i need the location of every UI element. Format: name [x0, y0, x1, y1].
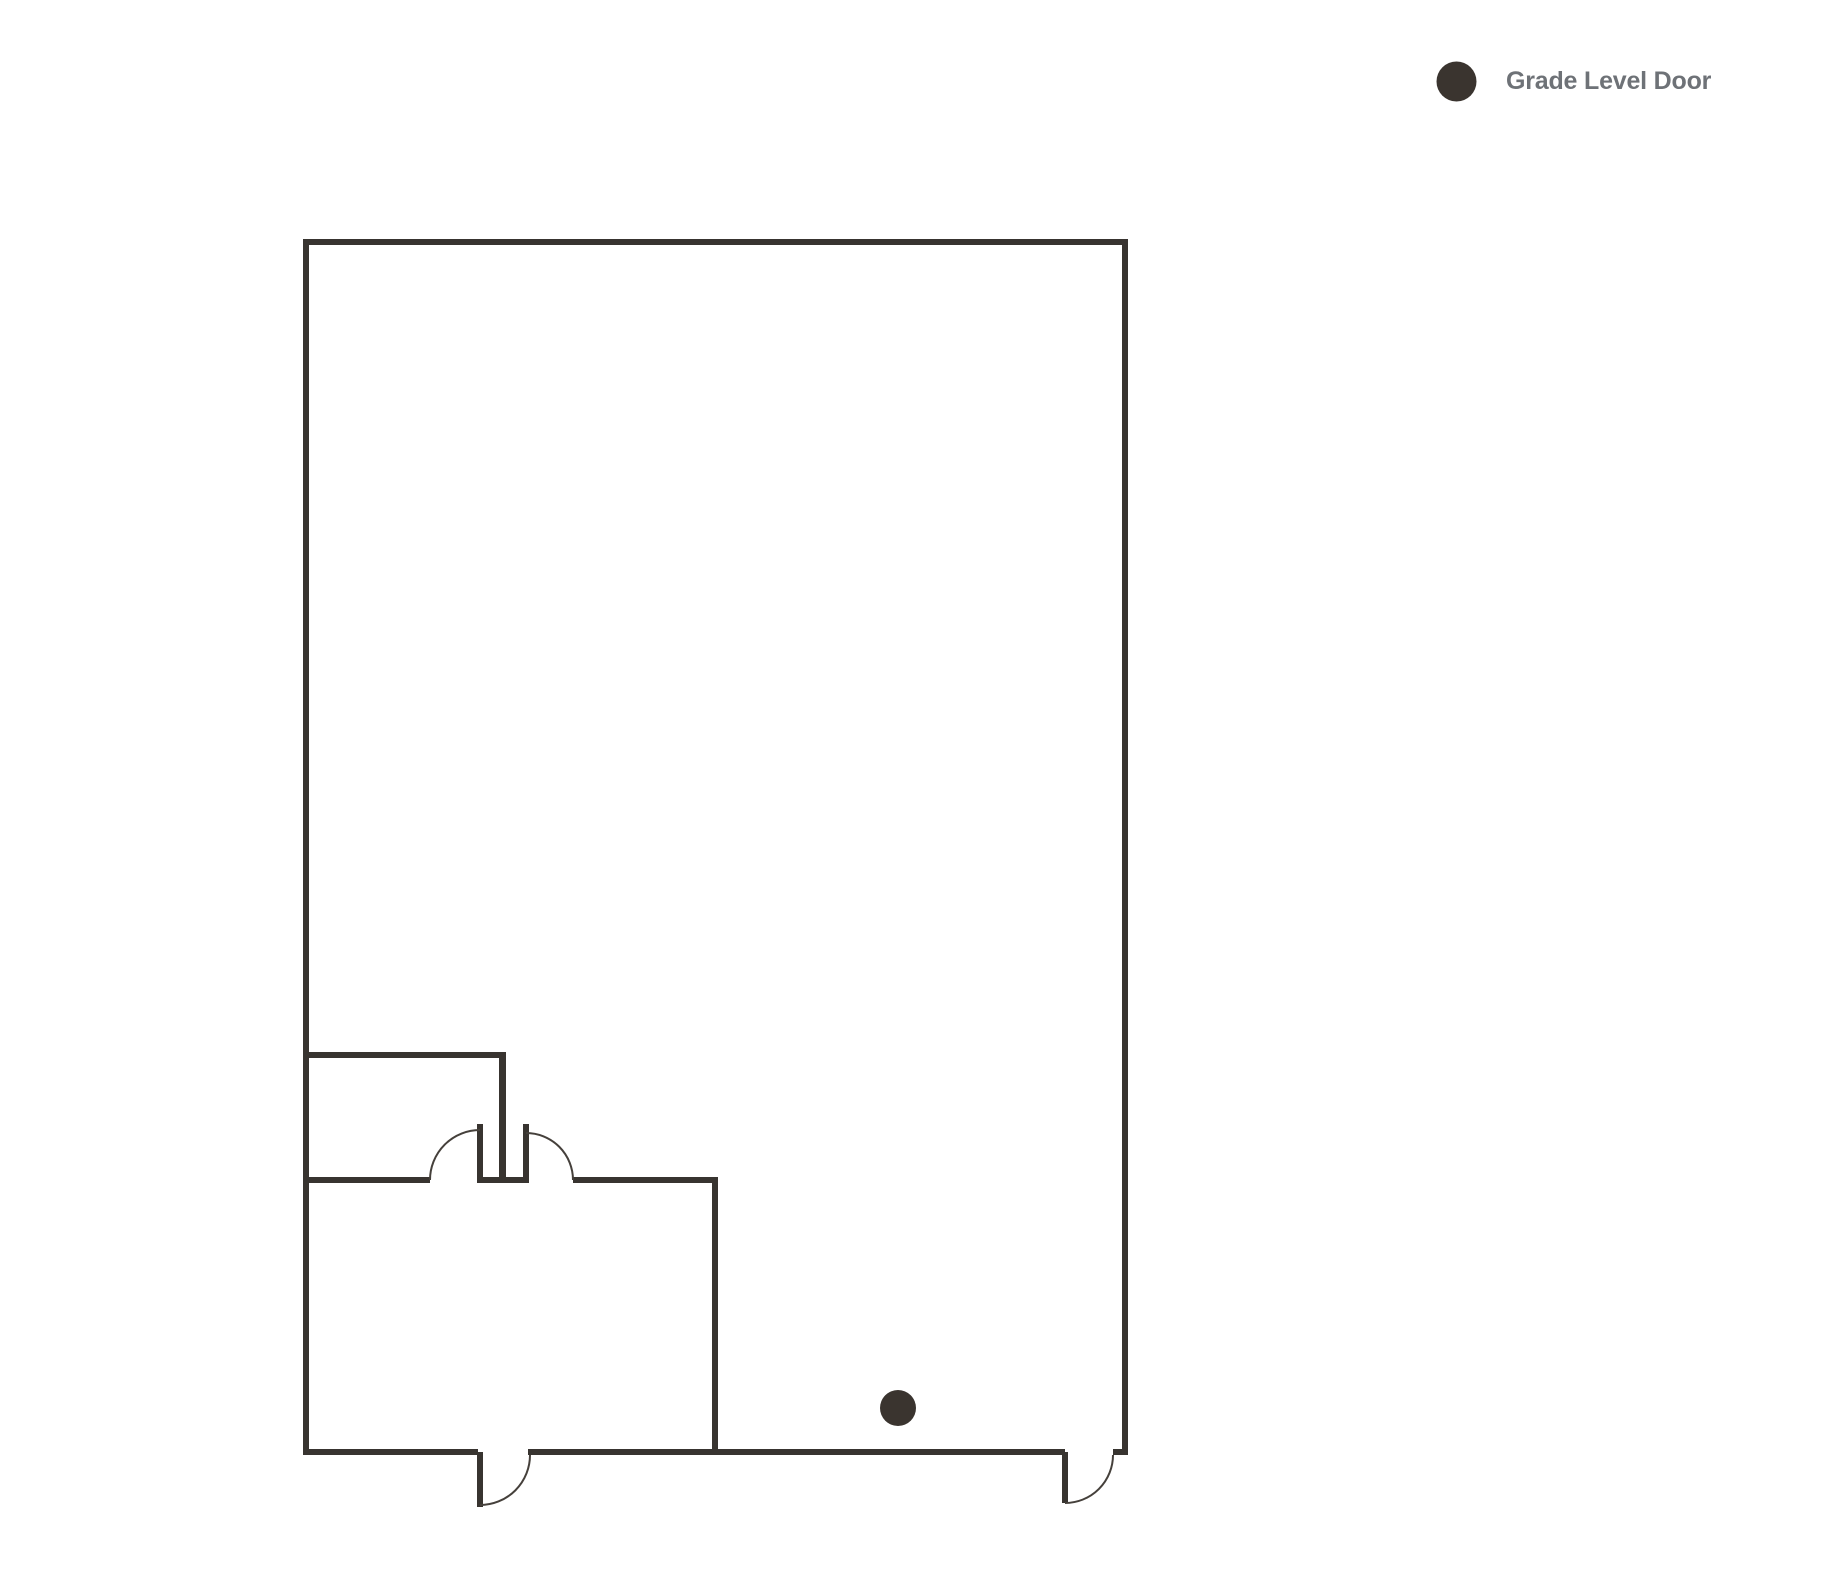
grade-level-door-marker	[880, 1390, 916, 1426]
wall-right	[1122, 239, 1128, 1455]
grade-level-door-icon	[1436, 61, 1477, 102]
door-leaf-exterior-left	[477, 1452, 483, 1507]
legend-marker-circle	[1437, 62, 1477, 102]
door-arc-interior-right	[526, 1133, 573, 1180]
wall-top	[303, 239, 1128, 245]
door-arc-exterior-left	[480, 1455, 530, 1505]
door-leaf-interior-left	[477, 1124, 483, 1183]
wall-room2-top-segment-3	[573, 1177, 718, 1183]
door-leaf-exterior-right	[1062, 1452, 1068, 1503]
wall-bottom-segment-3	[1113, 1449, 1128, 1455]
legend: Grade Level Door	[1436, 61, 1711, 102]
page: Grade Level Door	[0, 0, 1838, 1584]
walls	[303, 239, 1128, 1455]
wall-room2-top-segment-2	[477, 1177, 529, 1183]
wall-bottom-segment-2	[528, 1449, 1065, 1455]
door-swing-arcs	[430, 1130, 1113, 1505]
legend-label: Grade Level Door	[1506, 61, 1711, 102]
wall-room1-right	[499, 1052, 506, 1183]
floor-plan	[0, 0, 1838, 1584]
door-arc-interior-left	[430, 1130, 480, 1180]
door-arc-exterior-right	[1065, 1455, 1113, 1503]
wall-bottom-segment-1	[303, 1449, 478, 1455]
wall-room1-top	[303, 1052, 506, 1058]
wall-room2-top-segment-1	[303, 1177, 430, 1183]
wall-left	[303, 239, 309, 1455]
wall-room2-right	[712, 1177, 718, 1455]
